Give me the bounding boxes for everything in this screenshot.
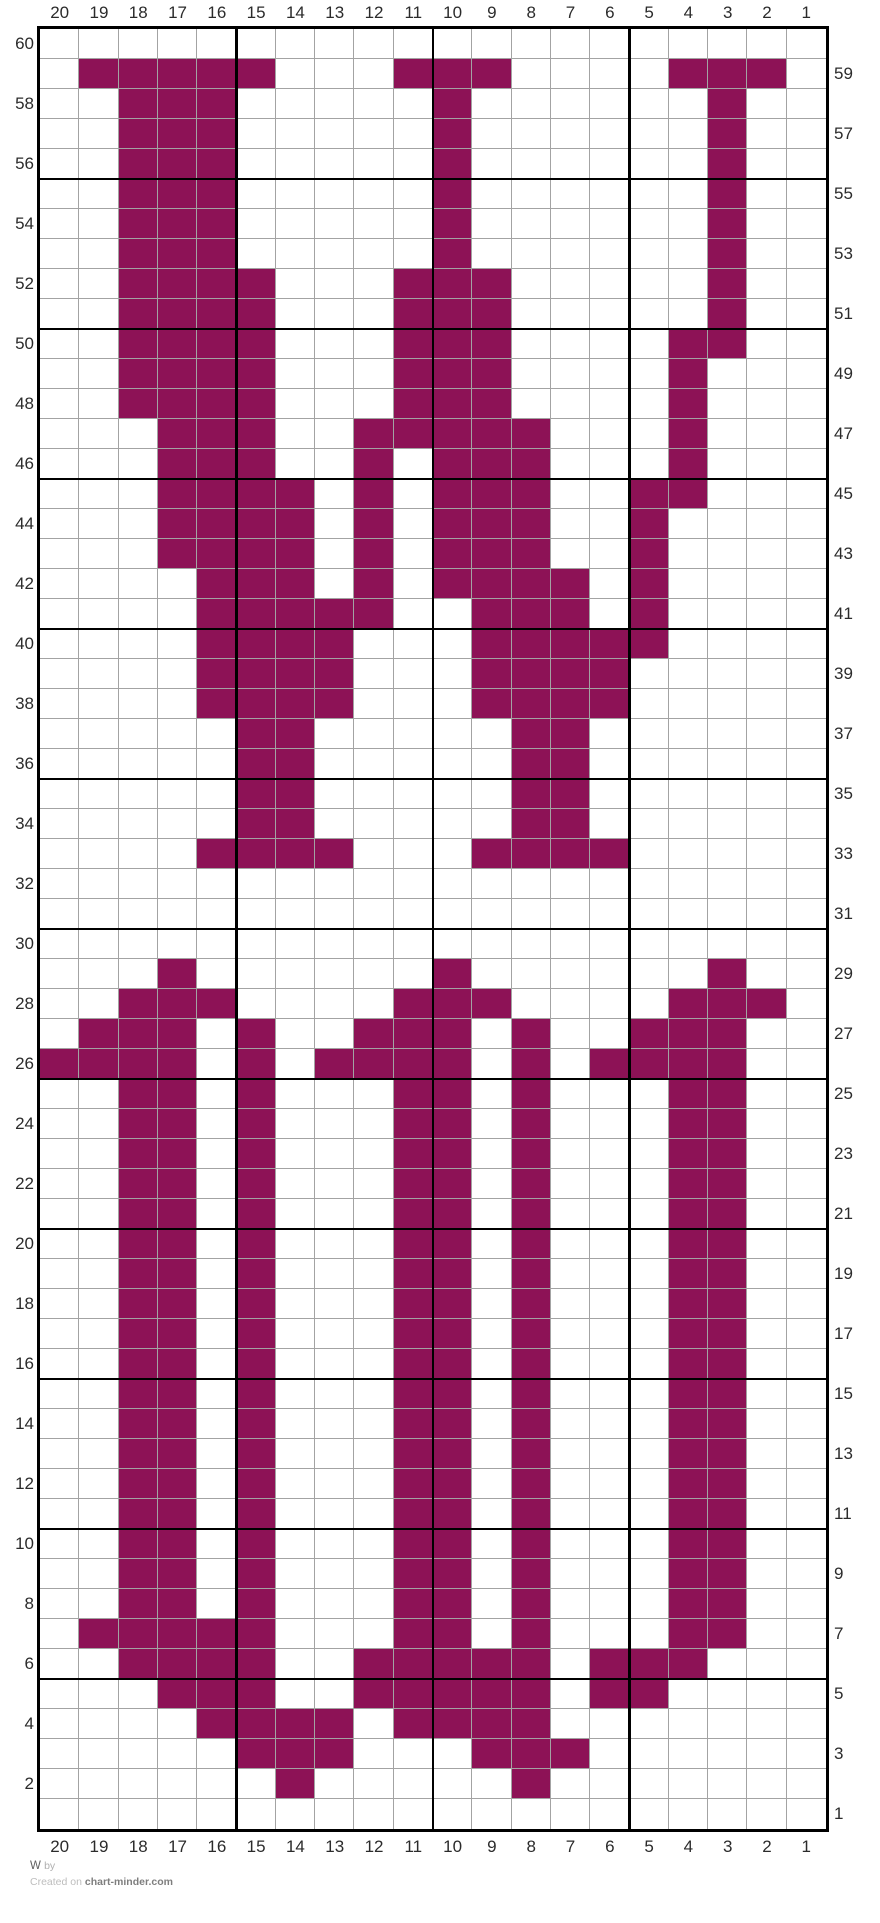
- grid-cell[interactable]: [394, 1799, 433, 1829]
- grid-cell[interactable]: [551, 569, 590, 599]
- grid-cell[interactable]: [708, 239, 747, 269]
- grid-cell[interactable]: [394, 1709, 433, 1739]
- grid-cell[interactable]: [394, 779, 433, 809]
- grid-cell[interactable]: [590, 749, 629, 779]
- grid-cell[interactable]: [787, 479, 826, 509]
- grid-cell[interactable]: [276, 1079, 315, 1109]
- grid-cell[interactable]: [708, 1169, 747, 1199]
- grid-cell[interactable]: [512, 269, 551, 299]
- grid-cell[interactable]: [40, 1259, 79, 1289]
- grid-cell[interactable]: [394, 59, 433, 89]
- grid-cell[interactable]: [315, 1319, 354, 1349]
- grid-cell[interactable]: [315, 299, 354, 329]
- grid-cell[interactable]: [787, 1199, 826, 1229]
- grid-cell[interactable]: [629, 1289, 668, 1319]
- grid-cell[interactable]: [119, 509, 158, 539]
- grid-cell[interactable]: [787, 29, 826, 59]
- grid-cell[interactable]: [787, 1409, 826, 1439]
- grid-cell[interactable]: [40, 1349, 79, 1379]
- grid-cell[interactable]: [119, 239, 158, 269]
- grid-cell[interactable]: [197, 1409, 236, 1439]
- grid-cell[interactable]: [433, 599, 472, 629]
- grid-cell[interactable]: [315, 1619, 354, 1649]
- knitting-chart-grid[interactable]: [40, 29, 826, 1829]
- grid-cell[interactable]: [236, 659, 275, 689]
- grid-cell[interactable]: [119, 1289, 158, 1319]
- grid-cell[interactable]: [119, 1529, 158, 1559]
- grid-cell[interactable]: [787, 1499, 826, 1529]
- grid-cell[interactable]: [669, 479, 708, 509]
- grid-cell[interactable]: [79, 1529, 118, 1559]
- grid-cell[interactable]: [40, 1049, 79, 1079]
- grid-cell[interactable]: [394, 809, 433, 839]
- grid-cell[interactable]: [40, 149, 79, 179]
- grid-cell[interactable]: [590, 419, 629, 449]
- grid-cell[interactable]: [629, 329, 668, 359]
- grid-cell[interactable]: [236, 509, 275, 539]
- grid-cell[interactable]: [315, 1169, 354, 1199]
- grid-cell[interactable]: [354, 1799, 393, 1829]
- grid-cell[interactable]: [236, 599, 275, 629]
- grid-cell[interactable]: [354, 689, 393, 719]
- grid-cell[interactable]: [276, 1679, 315, 1709]
- grid-cell[interactable]: [119, 1559, 158, 1589]
- grid-cell[interactable]: [472, 1679, 511, 1709]
- grid-cell[interactable]: [787, 1469, 826, 1499]
- grid-cell[interactable]: [551, 1259, 590, 1289]
- grid-cell[interactable]: [79, 869, 118, 899]
- grid-cell[interactable]: [551, 839, 590, 869]
- grid-cell[interactable]: [394, 1049, 433, 1079]
- grid-cell[interactable]: [394, 1499, 433, 1529]
- grid-cell[interactable]: [354, 1589, 393, 1619]
- grid-cell[interactable]: [551, 1289, 590, 1319]
- grid-cell[interactable]: [433, 179, 472, 209]
- grid-cell[interactable]: [40, 1649, 79, 1679]
- grid-cell[interactable]: [158, 899, 197, 929]
- grid-cell[interactable]: [158, 1319, 197, 1349]
- grid-cell[interactable]: [551, 1199, 590, 1229]
- grid-cell[interactable]: [590, 389, 629, 419]
- grid-cell[interactable]: [669, 299, 708, 329]
- grid-cell[interactable]: [158, 299, 197, 329]
- grid-cell[interactable]: [40, 479, 79, 509]
- grid-cell[interactable]: [40, 119, 79, 149]
- grid-cell[interactable]: [590, 1589, 629, 1619]
- grid-cell[interactable]: [315, 389, 354, 419]
- grid-cell[interactable]: [119, 629, 158, 659]
- grid-cell[interactable]: [512, 209, 551, 239]
- grid-cell[interactable]: [119, 479, 158, 509]
- grid-cell[interactable]: [512, 869, 551, 899]
- grid-cell[interactable]: [590, 119, 629, 149]
- grid-cell[interactable]: [590, 689, 629, 719]
- grid-cell[interactable]: [197, 1499, 236, 1529]
- grid-cell[interactable]: [669, 179, 708, 209]
- grid-cell[interactable]: [354, 1289, 393, 1319]
- grid-cell[interactable]: [79, 29, 118, 59]
- grid-cell[interactable]: [119, 929, 158, 959]
- grid-cell[interactable]: [433, 809, 472, 839]
- grid-cell[interactable]: [551, 269, 590, 299]
- grid-cell[interactable]: [747, 1469, 786, 1499]
- grid-cell[interactable]: [236, 1079, 275, 1109]
- grid-cell[interactable]: [590, 929, 629, 959]
- grid-cell[interactable]: [236, 179, 275, 209]
- grid-cell[interactable]: [79, 359, 118, 389]
- grid-cell[interactable]: [276, 1319, 315, 1349]
- grid-cell[interactable]: [472, 629, 511, 659]
- grid-cell[interactable]: [708, 809, 747, 839]
- grid-cell[interactable]: [512, 149, 551, 179]
- grid-cell[interactable]: [276, 239, 315, 269]
- grid-cell[interactable]: [354, 869, 393, 899]
- grid-cell[interactable]: [40, 1529, 79, 1559]
- grid-cell[interactable]: [551, 1499, 590, 1529]
- grid-cell[interactable]: [708, 779, 747, 809]
- grid-cell[interactable]: [315, 1439, 354, 1469]
- grid-cell[interactable]: [472, 119, 511, 149]
- grid-cell[interactable]: [433, 1409, 472, 1439]
- grid-cell[interactable]: [158, 359, 197, 389]
- grid-cell[interactable]: [40, 449, 79, 479]
- grid-cell[interactable]: [236, 1289, 275, 1319]
- grid-cell[interactable]: [394, 329, 433, 359]
- grid-cell[interactable]: [394, 1169, 433, 1199]
- grid-cell[interactable]: [119, 1319, 158, 1349]
- grid-cell[interactable]: [787, 839, 826, 869]
- grid-cell[interactable]: [747, 1019, 786, 1049]
- grid-cell[interactable]: [394, 1679, 433, 1709]
- grid-cell[interactable]: [551, 1019, 590, 1049]
- grid-cell[interactable]: [394, 539, 433, 569]
- grid-cell[interactable]: [197, 329, 236, 359]
- grid-cell[interactable]: [747, 149, 786, 179]
- grid-cell[interactable]: [79, 59, 118, 89]
- grid-cell[interactable]: [119, 449, 158, 479]
- grid-cell[interactable]: [629, 1259, 668, 1289]
- grid-cell[interactable]: [669, 149, 708, 179]
- grid-cell[interactable]: [276, 959, 315, 989]
- grid-cell[interactable]: [787, 1169, 826, 1199]
- grid-cell[interactable]: [708, 1319, 747, 1349]
- grid-cell[interactable]: [276, 299, 315, 329]
- grid-cell[interactable]: [551, 29, 590, 59]
- grid-cell[interactable]: [354, 839, 393, 869]
- grid-cell[interactable]: [708, 29, 747, 59]
- grid-cell[interactable]: [787, 959, 826, 989]
- grid-cell[interactable]: [747, 419, 786, 449]
- grid-cell[interactable]: [787, 749, 826, 779]
- grid-cell[interactable]: [787, 449, 826, 479]
- grid-cell[interactable]: [787, 1019, 826, 1049]
- grid-cell[interactable]: [354, 299, 393, 329]
- grid-cell[interactable]: [79, 1619, 118, 1649]
- grid-cell[interactable]: [787, 1289, 826, 1319]
- grid-cell[interactable]: [629, 1619, 668, 1649]
- grid-cell[interactable]: [394, 749, 433, 779]
- grid-cell[interactable]: [79, 1049, 118, 1079]
- grid-cell[interactable]: [276, 119, 315, 149]
- grid-cell[interactable]: [433, 1349, 472, 1379]
- grid-cell[interactable]: [40, 1499, 79, 1529]
- grid-cell[interactable]: [354, 1349, 393, 1379]
- grid-cell[interactable]: [669, 809, 708, 839]
- grid-cell[interactable]: [354, 389, 393, 419]
- grid-cell[interactable]: [276, 1229, 315, 1259]
- grid-cell[interactable]: [669, 1169, 708, 1199]
- grid-cell[interactable]: [236, 1139, 275, 1169]
- grid-cell[interactable]: [315, 509, 354, 539]
- grid-cell[interactable]: [787, 1529, 826, 1559]
- grid-cell[interactable]: [472, 1199, 511, 1229]
- grid-cell[interactable]: [433, 989, 472, 1019]
- grid-cell[interactable]: [551, 779, 590, 809]
- grid-cell[interactable]: [79, 1199, 118, 1229]
- grid-cell[interactable]: [747, 1649, 786, 1679]
- grid-cell[interactable]: [40, 539, 79, 569]
- grid-cell[interactable]: [669, 989, 708, 1019]
- grid-cell[interactable]: [433, 1139, 472, 1169]
- grid-cell[interactable]: [197, 1079, 236, 1109]
- grid-cell[interactable]: [40, 989, 79, 1019]
- grid-cell[interactable]: [551, 479, 590, 509]
- grid-cell[interactable]: [747, 1259, 786, 1289]
- grid-cell[interactable]: [236, 1679, 275, 1709]
- grid-cell[interactable]: [79, 1469, 118, 1499]
- grid-cell[interactable]: [158, 1649, 197, 1679]
- grid-cell[interactable]: [747, 1409, 786, 1439]
- grid-cell[interactable]: [40, 1109, 79, 1139]
- grid-cell[interactable]: [433, 149, 472, 179]
- grid-cell[interactable]: [354, 749, 393, 779]
- grid-cell[interactable]: [551, 929, 590, 959]
- grid-cell[interactable]: [747, 539, 786, 569]
- grid-cell[interactable]: [79, 1649, 118, 1679]
- grid-cell[interactable]: [79, 299, 118, 329]
- grid-cell[interactable]: [512, 1619, 551, 1649]
- grid-cell[interactable]: [472, 749, 511, 779]
- grid-cell[interactable]: [197, 389, 236, 419]
- grid-cell[interactable]: [669, 1469, 708, 1499]
- grid-cell[interactable]: [197, 119, 236, 149]
- grid-cell[interactable]: [747, 719, 786, 749]
- grid-cell[interactable]: [276, 509, 315, 539]
- grid-cell[interactable]: [787, 329, 826, 359]
- grid-cell[interactable]: [315, 569, 354, 599]
- grid-cell[interactable]: [40, 1139, 79, 1169]
- grid-cell[interactable]: [472, 1619, 511, 1649]
- grid-cell[interactable]: [747, 1439, 786, 1469]
- grid-cell[interactable]: [315, 1259, 354, 1289]
- grid-cell[interactable]: [590, 1109, 629, 1139]
- grid-cell[interactable]: [433, 1709, 472, 1739]
- grid-cell[interactable]: [512, 1559, 551, 1589]
- grid-cell[interactable]: [236, 1229, 275, 1259]
- grid-cell[interactable]: [315, 1589, 354, 1619]
- grid-cell[interactable]: [119, 959, 158, 989]
- grid-cell[interactable]: [551, 869, 590, 899]
- grid-cell[interactable]: [472, 1499, 511, 1529]
- grid-cell[interactable]: [512, 629, 551, 659]
- grid-cell[interactable]: [747, 329, 786, 359]
- grid-cell[interactable]: [354, 899, 393, 929]
- grid-cell[interactable]: [629, 1049, 668, 1079]
- grid-cell[interactable]: [197, 29, 236, 59]
- grid-cell[interactable]: [669, 1109, 708, 1139]
- grid-cell[interactable]: [197, 629, 236, 659]
- grid-cell[interactable]: [590, 1169, 629, 1199]
- grid-cell[interactable]: [119, 809, 158, 839]
- grid-cell[interactable]: [394, 1079, 433, 1109]
- grid-cell[interactable]: [79, 509, 118, 539]
- grid-cell[interactable]: [551, 989, 590, 1019]
- grid-cell[interactable]: [551, 1739, 590, 1769]
- grid-cell[interactable]: [433, 479, 472, 509]
- grid-cell[interactable]: [787, 179, 826, 209]
- grid-cell[interactable]: [747, 1229, 786, 1259]
- grid-cell[interactable]: [394, 1109, 433, 1139]
- grid-cell[interactable]: [669, 389, 708, 419]
- grid-cell[interactable]: [197, 599, 236, 629]
- grid-cell[interactable]: [197, 959, 236, 989]
- grid-cell[interactable]: [315, 119, 354, 149]
- grid-cell[interactable]: [590, 569, 629, 599]
- grid-cell[interactable]: [197, 1439, 236, 1469]
- grid-cell[interactable]: [315, 1109, 354, 1139]
- grid-cell[interactable]: [354, 719, 393, 749]
- grid-cell[interactable]: [197, 1589, 236, 1619]
- grid-cell[interactable]: [787, 1709, 826, 1739]
- grid-cell[interactable]: [551, 179, 590, 209]
- grid-cell[interactable]: [315, 659, 354, 689]
- grid-cell[interactable]: [590, 839, 629, 869]
- grid-cell[interactable]: [512, 779, 551, 809]
- grid-cell[interactable]: [787, 1229, 826, 1259]
- grid-cell[interactable]: [629, 659, 668, 689]
- grid-cell[interactable]: [669, 1199, 708, 1229]
- grid-cell[interactable]: [787, 689, 826, 719]
- grid-cell[interactable]: [787, 1619, 826, 1649]
- grid-cell[interactable]: [708, 209, 747, 239]
- grid-cell[interactable]: [787, 1379, 826, 1409]
- grid-cell[interactable]: [276, 149, 315, 179]
- grid-cell[interactable]: [197, 869, 236, 899]
- grid-cell[interactable]: [79, 119, 118, 149]
- grid-cell[interactable]: [197, 299, 236, 329]
- grid-cell[interactable]: [40, 239, 79, 269]
- grid-cell[interactable]: [236, 89, 275, 119]
- grid-cell[interactable]: [119, 419, 158, 449]
- grid-cell[interactable]: [354, 1169, 393, 1199]
- grid-cell[interactable]: [472, 1769, 511, 1799]
- grid-cell[interactable]: [394, 29, 433, 59]
- grid-cell[interactable]: [158, 689, 197, 719]
- grid-cell[interactable]: [236, 1349, 275, 1379]
- grid-cell[interactable]: [276, 1199, 315, 1229]
- grid-cell[interactable]: [472, 1379, 511, 1409]
- grid-cell[interactable]: [708, 1289, 747, 1319]
- grid-cell[interactable]: [394, 209, 433, 239]
- grid-cell[interactable]: [158, 1079, 197, 1109]
- grid-cell[interactable]: [551, 899, 590, 929]
- grid-cell[interactable]: [119, 539, 158, 569]
- grid-cell[interactable]: [394, 569, 433, 599]
- grid-cell[interactable]: [79, 239, 118, 269]
- grid-cell[interactable]: [629, 959, 668, 989]
- grid-cell[interactable]: [433, 1079, 472, 1109]
- grid-cell[interactable]: [551, 209, 590, 239]
- grid-cell[interactable]: [197, 1199, 236, 1229]
- grid-cell[interactable]: [197, 809, 236, 839]
- grid-cell[interactable]: [590, 1379, 629, 1409]
- grid-cell[interactable]: [669, 1439, 708, 1469]
- grid-cell[interactable]: [512, 1199, 551, 1229]
- grid-cell[interactable]: [119, 1139, 158, 1169]
- grid-cell[interactable]: [158, 179, 197, 209]
- grid-cell[interactable]: [512, 1229, 551, 1259]
- grid-cell[interactable]: [197, 1259, 236, 1289]
- grid-cell[interactable]: [394, 1019, 433, 1049]
- grid-cell[interactable]: [551, 1409, 590, 1439]
- grid-cell[interactable]: [551, 1229, 590, 1259]
- grid-cell[interactable]: [629, 1379, 668, 1409]
- grid-cell[interactable]: [354, 539, 393, 569]
- grid-cell[interactable]: [433, 1589, 472, 1619]
- grid-cell[interactable]: [708, 359, 747, 389]
- grid-cell[interactable]: [629, 1169, 668, 1199]
- grid-cell[interactable]: [433, 1169, 472, 1199]
- grid-cell[interactable]: [119, 59, 158, 89]
- grid-cell[interactable]: [236, 329, 275, 359]
- grid-cell[interactable]: [119, 749, 158, 779]
- grid-cell[interactable]: [433, 1439, 472, 1469]
- grid-cell[interactable]: [119, 389, 158, 419]
- grid-cell[interactable]: [629, 1439, 668, 1469]
- grid-cell[interactable]: [512, 809, 551, 839]
- grid-cell[interactable]: [512, 749, 551, 779]
- grid-cell[interactable]: [433, 689, 472, 719]
- grid-cell[interactable]: [236, 779, 275, 809]
- grid-cell[interactable]: [79, 1139, 118, 1169]
- grid-cell[interactable]: [315, 1289, 354, 1319]
- grid-cell[interactable]: [472, 209, 511, 239]
- grid-cell[interactable]: [119, 1229, 158, 1259]
- grid-cell[interactable]: [40, 509, 79, 539]
- grid-cell[interactable]: [40, 1589, 79, 1619]
- grid-cell[interactable]: [315, 749, 354, 779]
- grid-cell[interactable]: [433, 1019, 472, 1049]
- grid-cell[interactable]: [512, 1439, 551, 1469]
- grid-cell[interactable]: [551, 599, 590, 629]
- grid-cell[interactable]: [433, 1619, 472, 1649]
- grid-cell[interactable]: [158, 1259, 197, 1289]
- grid-cell[interactable]: [236, 1649, 275, 1679]
- grid-cell[interactable]: [669, 1769, 708, 1799]
- grid-cell[interactable]: [119, 569, 158, 599]
- grid-cell[interactable]: [197, 1679, 236, 1709]
- grid-cell[interactable]: [79, 1409, 118, 1439]
- grid-cell[interactable]: [708, 1019, 747, 1049]
- grid-cell[interactable]: [629, 299, 668, 329]
- grid-cell[interactable]: [119, 989, 158, 1019]
- grid-cell[interactable]: [512, 1259, 551, 1289]
- grid-cell[interactable]: [512, 1469, 551, 1499]
- grid-cell[interactable]: [708, 1619, 747, 1649]
- grid-cell[interactable]: [276, 989, 315, 1019]
- grid-cell[interactable]: [79, 599, 118, 629]
- grid-cell[interactable]: [433, 749, 472, 779]
